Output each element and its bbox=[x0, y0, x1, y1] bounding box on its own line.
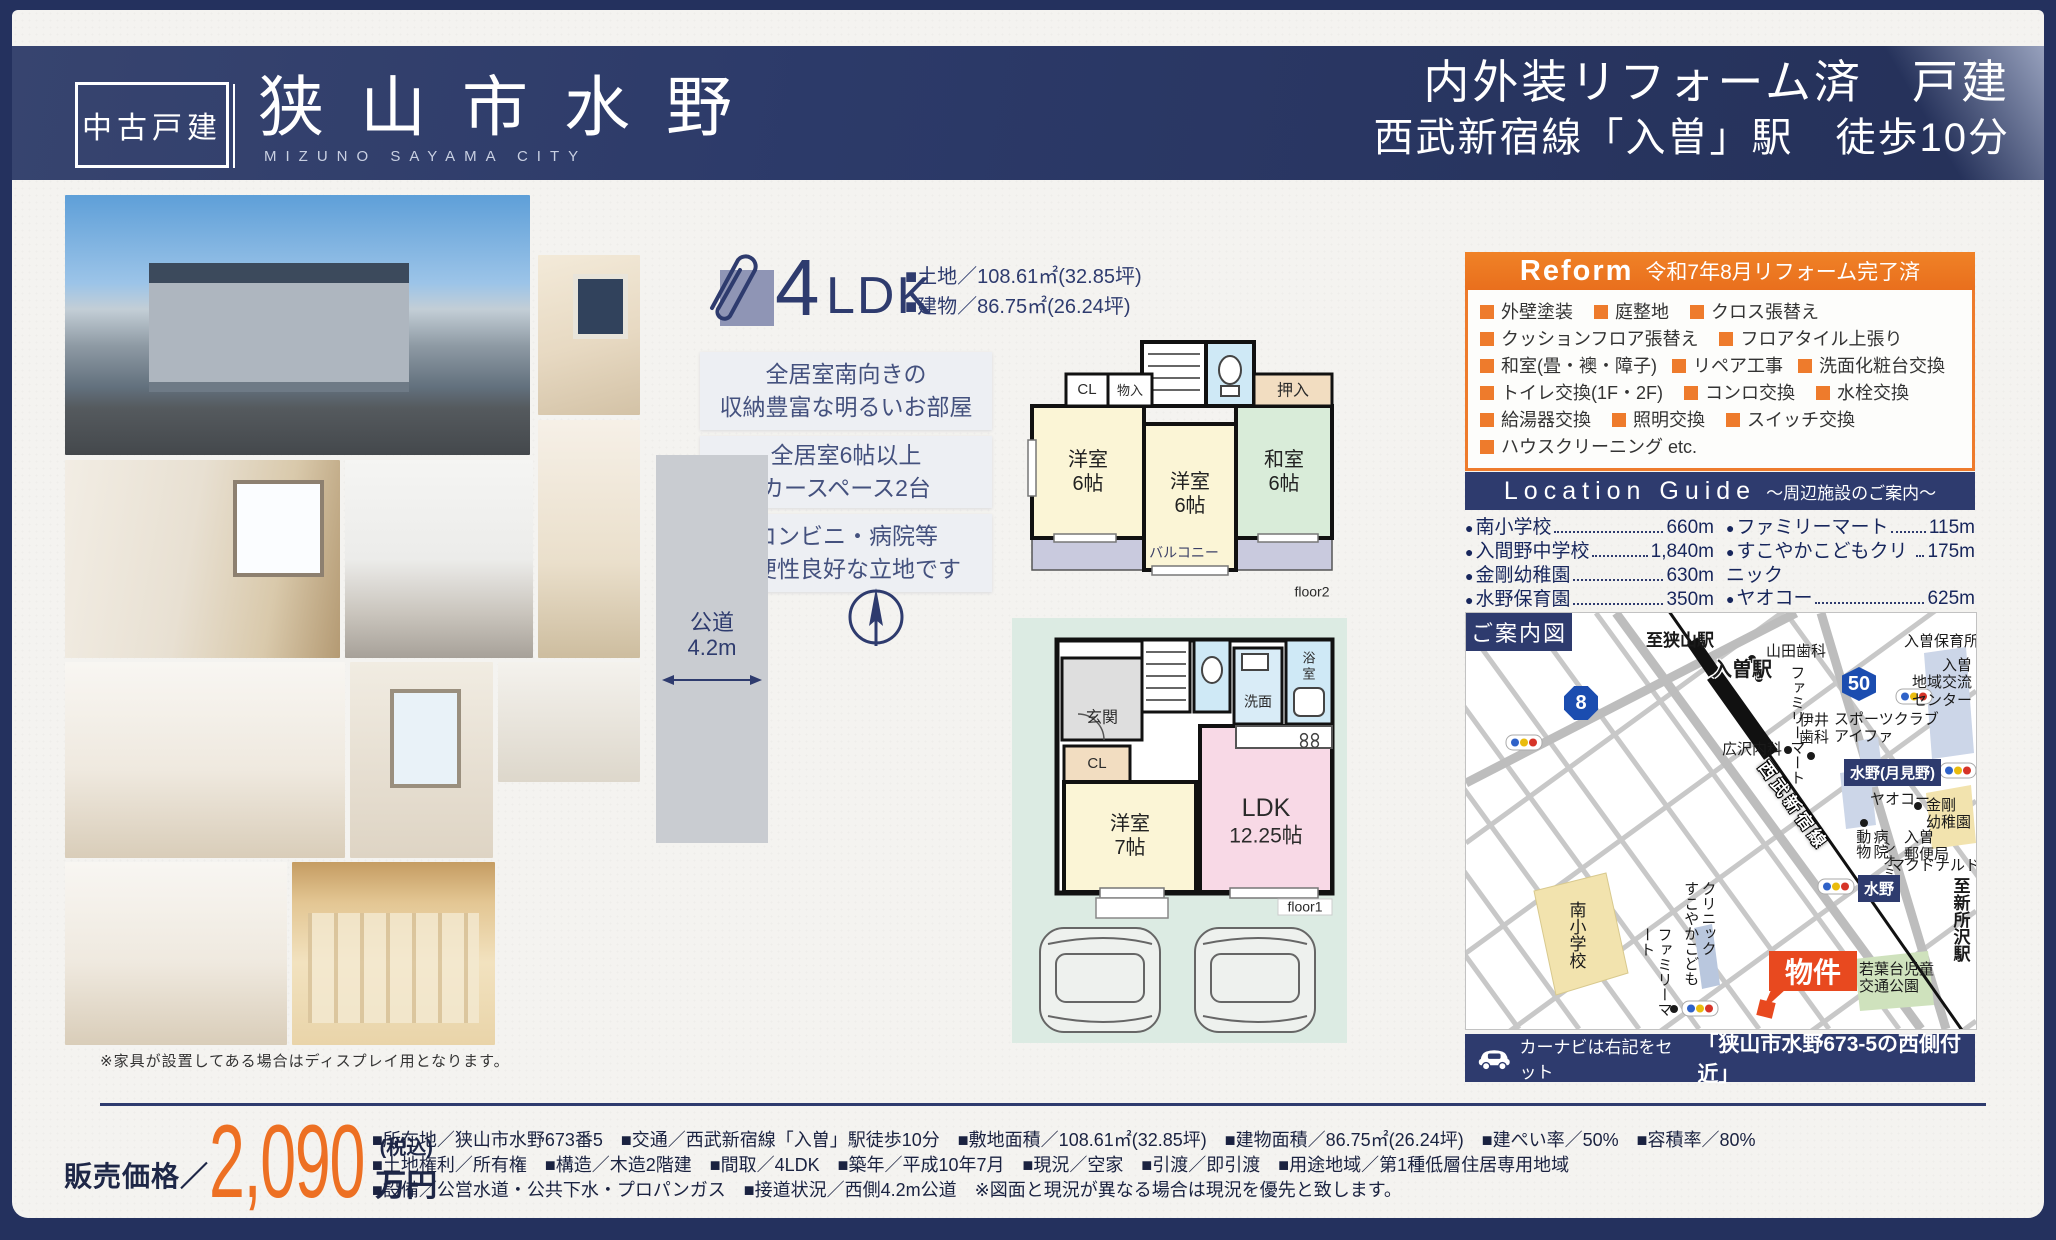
feature-2-line2: カースペース2台 bbox=[761, 472, 931, 505]
map-label-familymart-south: ファミリーマート bbox=[1638, 927, 1673, 1029]
map-label-yaoko: ヤオコー bbox=[1870, 791, 1930, 808]
facility-name: 入間野中学校 bbox=[1465, 540, 1589, 564]
bus-stop-mizuno: 水野 bbox=[1858, 875, 1900, 902]
spec-line-3: ■設備／公営水道・公共下水・プロパンガス ■接道状況／西側4.2m公道 ※図面と… bbox=[372, 1178, 1992, 1203]
facility-name: すこやかこどもクリニック bbox=[1726, 540, 1913, 587]
dotted-leader bbox=[1916, 555, 1924, 557]
map-label-sukoyaka-clinic: すこやかこどもクリニック bbox=[1682, 881, 1717, 993]
square-bullet-icon bbox=[1612, 413, 1626, 427]
map-label-to-sayama: 至狭山駅 bbox=[1646, 631, 1714, 651]
map-title: ご案内図 bbox=[1466, 613, 1572, 651]
facility-distance: 115m bbox=[1929, 516, 1975, 539]
list-item: すこやかこどもクリニック175m bbox=[1726, 540, 1975, 587]
map-label-hoikusho: 入曽保育所 bbox=[1904, 633, 1977, 650]
road-strip: 公道 4.2m bbox=[656, 455, 768, 843]
photo-disclaimer: ※家具が設置してある場合はディスプレイ用となります。 bbox=[100, 1050, 510, 1071]
reform-item: トイレ交換(1F・2F) bbox=[1501, 383, 1663, 403]
square-bullet-icon bbox=[1798, 359, 1812, 373]
reform-item: 水栓交換 bbox=[1837, 383, 1909, 403]
reform-title-en: Reform bbox=[1520, 255, 1634, 288]
reform-list: 外壁塗装 庭整地 クロス張替え クッションフロア張替え フロアタイル上張り 和室… bbox=[1465, 290, 1975, 471]
location-guide-title-en: Location Guide bbox=[1504, 477, 1756, 506]
paperclip-icon bbox=[698, 246, 778, 334]
square-bullet-icon bbox=[1726, 413, 1740, 427]
photo-living-room-2 bbox=[65, 662, 345, 858]
page-title: 狭山市水野 bbox=[258, 54, 768, 150]
spec-line-2: ■土地権利／所有権 ■構造／木造2階建 ■間取／4LDK ■築年／平成10年7月… bbox=[372, 1153, 1992, 1178]
car-navi-bar: カーナビは右記をセット 「狭山市水野673-5の西側付近」 bbox=[1465, 1034, 1975, 1082]
header-catchcopy: 内外装リフォーム済 戸建 西武新宿線「入曽」駅 徒歩10分 bbox=[1374, 54, 2011, 164]
bottom-divider bbox=[100, 1103, 1986, 1106]
map-label-kongo-kindergarten: 金剛 幼稚園 bbox=[1926, 797, 1971, 832]
ldk-size-label: 12.25帖 bbox=[1229, 823, 1303, 848]
facility-name: ファミリーマート bbox=[1726, 516, 1888, 540]
header-divider bbox=[233, 84, 235, 168]
reform-row: 和室(畳・襖・障子) リペア工事 洗面化粧台交換 bbox=[1480, 353, 1962, 380]
square-bullet-icon bbox=[1480, 359, 1494, 373]
reform-row: ハウスクリーニング etc. bbox=[1480, 434, 1962, 461]
photo-hallway bbox=[538, 420, 640, 658]
feature-1-line1: 全居室南向きの bbox=[766, 358, 927, 391]
bath-label: 浴室 bbox=[1301, 650, 1317, 681]
floor1-tag: floor1 bbox=[1287, 899, 1322, 916]
car-icon bbox=[1477, 1044, 1512, 1072]
dotted-leader bbox=[1554, 531, 1663, 533]
land-building-areas: ■土地／108.61㎡(32.85坪) ■建物／86.75㎡(26.24坪) bbox=[905, 262, 1142, 322]
dotted-leader bbox=[1573, 579, 1663, 581]
room-size-1f: 7帖 bbox=[1114, 836, 1145, 860]
reform-item: 庭整地 bbox=[1615, 302, 1669, 322]
reform-item: フロアタイル上張り bbox=[1740, 329, 1902, 349]
dotted-leader bbox=[1592, 555, 1647, 557]
photo-dining bbox=[65, 862, 287, 1045]
room2-size-2f: 6帖 bbox=[1174, 494, 1205, 518]
reform-item: クッションフロア張替え bbox=[1501, 329, 1698, 349]
list-item: 水野保育園350m bbox=[1465, 588, 1714, 612]
reform-box: Reform 令和7年8月リフォーム完了済 外壁塗装 庭整地 クロス張替え クッ… bbox=[1465, 252, 1975, 471]
room3-size-2f: 6帖 bbox=[1268, 472, 1299, 496]
catch-line2: 西武新宿線「入曽」駅 徒歩10分 bbox=[1374, 112, 2011, 164]
facility-distance: 630m bbox=[1666, 564, 1714, 587]
feature-3-line1: コンビニ・病院等 bbox=[754, 520, 938, 553]
facility-distance: 625m bbox=[1927, 587, 1975, 610]
flyer-page: 中古戸建 狭山市水野 MIZUNO SAYAMA CITY 内外装リフォーム済 … bbox=[0, 0, 2056, 1240]
feature-2-line1: 全居室6帖以上 bbox=[771, 439, 922, 472]
floorplan-1f: 玄関 CL 洗面 浴室 洋室 7帖 LDK 12.25帖 floor1 bbox=[1012, 618, 1347, 1043]
facility-name: 水野保育園 bbox=[1465, 588, 1570, 612]
square-bullet-icon bbox=[1480, 305, 1494, 319]
reform-item: ハウスクリーニング etc. bbox=[1501, 437, 1697, 457]
reform-item: リペア工事 bbox=[1693, 356, 1783, 376]
location-guide-title-ja: ～周辺施設のご案内～ bbox=[1766, 479, 1936, 504]
square-bullet-icon bbox=[1672, 359, 1686, 373]
reform-item: 外壁塗装 bbox=[1501, 302, 1573, 322]
facility-distance: 660m bbox=[1666, 516, 1714, 539]
room-name-1f: 洋室 bbox=[1110, 812, 1150, 836]
reform-row: 給湯器交換 照明交換 スイッチ交換 bbox=[1480, 407, 1962, 434]
dotted-leader bbox=[1815, 602, 1924, 604]
feature-1-line2: 収納豊富な明るいお部屋 bbox=[720, 391, 973, 424]
photo-washroom bbox=[350, 662, 493, 858]
navi-instruction: カーナビは右記をセット bbox=[1520, 1033, 1690, 1083]
room2-name-2f: 洋室 bbox=[1170, 470, 1210, 494]
road-width: 4.2m bbox=[656, 635, 768, 661]
closet-label-2f: CL bbox=[1077, 381, 1096, 399]
map-label-wakabadai-park: 若葉台児童 交通公園 bbox=[1859, 961, 1934, 996]
map-label-minami-elementary: 南小学校 bbox=[1566, 901, 1586, 969]
photo-kitchen bbox=[345, 460, 533, 658]
photo-tatami-room bbox=[292, 862, 495, 1045]
square-bullet-icon bbox=[1684, 386, 1698, 400]
balcony-label: バルコニー bbox=[1149, 545, 1219, 562]
reform-row: クッションフロア張替え フロアタイル上張り bbox=[1480, 326, 1962, 353]
washroom-label: 洗面 bbox=[1244, 694, 1272, 711]
room1-size-2f: 6帖 bbox=[1072, 472, 1103, 496]
square-bullet-icon bbox=[1816, 386, 1830, 400]
ldk-label: LDK bbox=[1242, 793, 1291, 823]
reform-header: Reform 令和7年8月リフォーム完了済 bbox=[1465, 252, 1975, 290]
facility-distance: 1,840m bbox=[1651, 540, 1714, 563]
list-item: 金剛幼稚園630m bbox=[1465, 564, 1714, 588]
room3-name-2f: 和室 bbox=[1264, 448, 1304, 472]
location-guide-header: Location Guide ～周辺施設のご案内～ bbox=[1465, 472, 1975, 510]
bus-stop-mizuno-tsukimino: 水野(月見野) bbox=[1844, 759, 1941, 786]
ldk-number: 4 bbox=[775, 242, 820, 334]
facility-distance: 350m bbox=[1666, 588, 1714, 611]
reform-item: 給湯器交換 bbox=[1501, 410, 1591, 430]
square-bullet-icon bbox=[1480, 332, 1494, 346]
road-name: 公道 bbox=[656, 605, 768, 637]
area-map: ご案内図 至狭山駅 山田歯科 ファミリーマート 入曽駅 8 50 入曽保育所 入… bbox=[1465, 612, 1977, 1030]
price-label: 販売価格／ bbox=[64, 1155, 209, 1195]
list-item: 入間野中学校1,840m bbox=[1465, 540, 1714, 564]
floor2-tag: floor2 bbox=[1294, 584, 1329, 601]
map-label-kouryu-center: 入曽 地域交流 センター bbox=[1910, 657, 1972, 709]
page-subtitle: MIZUNO SAYAMA CITY bbox=[264, 148, 587, 165]
storage-label-2f: 物入 bbox=[1117, 383, 1143, 399]
compass-icon bbox=[845, 586, 907, 648]
oshiire-label-2f: 押入 bbox=[1277, 381, 1309, 400]
reform-item: 照明交換 bbox=[1633, 410, 1705, 430]
square-bullet-icon bbox=[1480, 386, 1494, 400]
road-width-arrow bbox=[662, 673, 762, 687]
reform-item: 和室(畳・襖・障子) bbox=[1501, 356, 1657, 376]
square-bullet-icon bbox=[1719, 332, 1733, 346]
facility-distance: 175m bbox=[1927, 540, 1975, 563]
facility-name: 金剛幼稚園 bbox=[1465, 564, 1570, 588]
photo-bathroom bbox=[538, 255, 640, 415]
list-item: 南小学校660m bbox=[1465, 516, 1714, 540]
room1-name-2f: 洋室 bbox=[1068, 448, 1108, 472]
square-bullet-icon bbox=[1690, 305, 1704, 319]
square-bullet-icon bbox=[1480, 440, 1494, 454]
spec-line-1: ■所在地／狭山市水野673番5 ■交通／西武新宿線「入曽」駅徒歩10分 ■敷地面… bbox=[372, 1128, 1992, 1153]
dotted-leader bbox=[1891, 531, 1925, 533]
navi-address: 「狭山市水野673-5の西側付近」 bbox=[1697, 1028, 1975, 1088]
facility-name: ヤオコー bbox=[1726, 587, 1812, 611]
map-label-mcdonalds: マクドナルド bbox=[1890, 857, 1977, 874]
reform-item: スイッチ交換 bbox=[1747, 410, 1855, 430]
photo-exterior bbox=[65, 195, 530, 455]
catch-line1: 内外装リフォーム済 戸建 bbox=[1374, 54, 2011, 112]
map-label-iriso-station: 入曽駅 bbox=[1712, 659, 1772, 682]
header-band: 中古戸建 狭山市水野 MIZUNO SAYAMA CITY 内外装リフォーム済 … bbox=[12, 46, 2044, 180]
photo-living-room bbox=[65, 460, 340, 658]
entrance-label: 玄関 bbox=[1086, 708, 1118, 727]
price-amount: 2,090 bbox=[209, 1118, 364, 1207]
list-item: ファミリーマート115m bbox=[1726, 516, 1975, 540]
map-label-sports-club: スポーツクラブ アイファ bbox=[1834, 711, 1939, 746]
photo-toilet bbox=[498, 662, 640, 782]
map-label-ii-dental: 伊井 歯科 bbox=[1799, 712, 1829, 747]
reform-row: 外壁塗装 庭整地 クロス張替え bbox=[1480, 299, 1962, 326]
closet-label-1f: CL bbox=[1087, 755, 1106, 773]
list-item: ヤオコー625m bbox=[1726, 587, 1975, 611]
square-bullet-icon bbox=[1480, 413, 1494, 427]
reform-item: クロス張替え bbox=[1711, 302, 1819, 322]
reform-title-ja: 令和7年8月リフォーム完了済 bbox=[1645, 256, 1920, 286]
property-marker-badge: 物件 bbox=[1769, 951, 1857, 991]
map-label-yamada-dental: 山田歯科 bbox=[1766, 643, 1826, 660]
square-bullet-icon bbox=[1594, 305, 1608, 319]
reform-item: 洗面化粧台交換 bbox=[1819, 356, 1945, 376]
dotted-leader bbox=[1573, 603, 1663, 605]
property-type-badge: 中古戸建 bbox=[75, 82, 229, 168]
facility-name: 南小学校 bbox=[1465, 516, 1551, 540]
property-specs: ■所在地／狭山市水野673番5 ■交通／西武新宿線「入曽」駅徒歩10分 ■敷地面… bbox=[372, 1128, 1992, 1203]
map-label-to-shintokorozawa: 至新所沢駅 bbox=[1950, 877, 1970, 962]
floorplan-2f: CL 物入 押入 洋室 6帖 洋室 6帖 和室 6帖 バルコニー floor2 bbox=[1012, 330, 1347, 610]
reform-item: コンロ交換 bbox=[1705, 383, 1795, 403]
feature-box-1: 全居室南向きの 収納豊富な明るいお部屋 bbox=[700, 352, 992, 430]
reform-row: トイレ交換(1F・2F) コンロ交換 水栓交換 bbox=[1480, 380, 1962, 407]
